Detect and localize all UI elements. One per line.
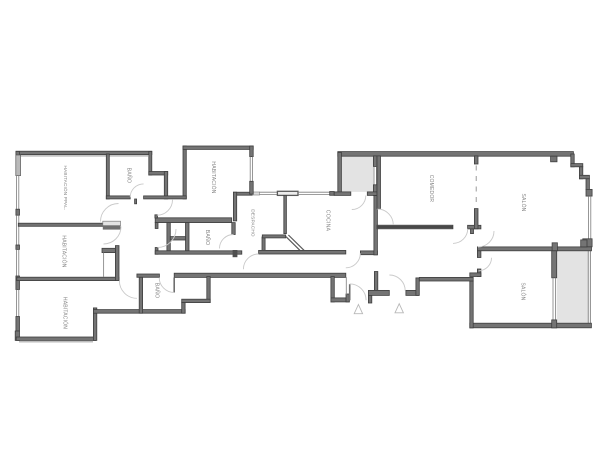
- svg-text:SALÓN: SALÓN: [520, 283, 527, 301]
- svg-text:HABITACIÓN: HABITACIÓN: [210, 161, 217, 193]
- svg-text:HABITACIÓN: HABITACIÓN: [61, 235, 68, 267]
- svg-text:BAÑO: BAÑO: [126, 168, 133, 184]
- svg-text:HABITACIÓN: HABITACIÓN: [62, 297, 69, 329]
- svg-text:BAÑO: BAÑO: [154, 283, 161, 299]
- svg-text:DESPACHO: DESPACHO: [251, 209, 256, 237]
- svg-text:COMEDOR: COMEDOR: [428, 175, 434, 203]
- svg-text:HABITACIÓN PPAL.: HABITACIÓN PPAL.: [63, 166, 69, 211]
- svg-text:SALÓN: SALÓN: [520, 194, 527, 212]
- svg-text:BAÑO: BAÑO: [204, 230, 211, 246]
- svg-text:COCINA: COCINA: [324, 210, 330, 232]
